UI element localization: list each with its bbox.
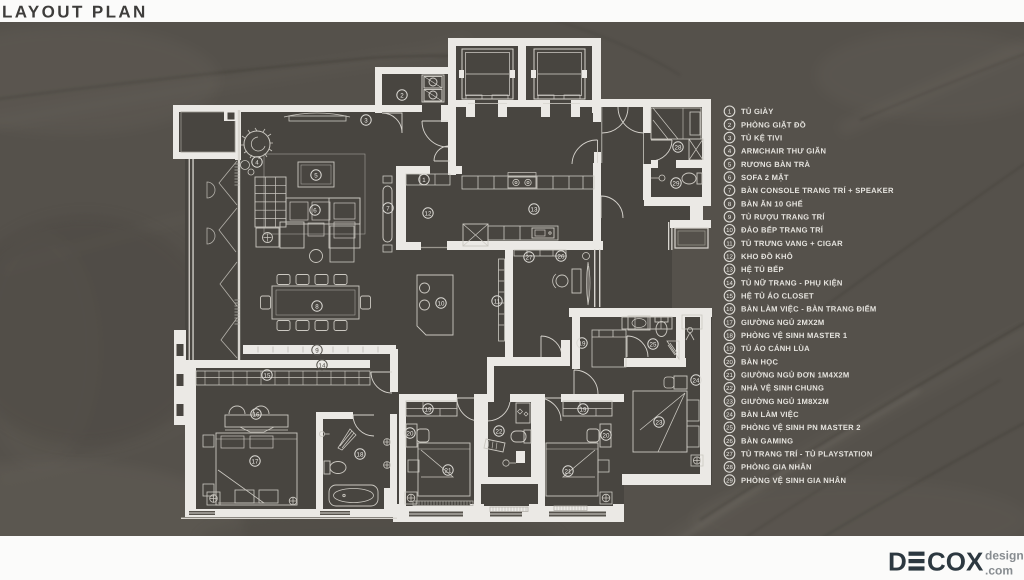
svg-text:KHO ĐỒ KHÔ: KHO ĐỒ KHÔ xyxy=(741,252,793,261)
svg-text:19: 19 xyxy=(580,406,587,413)
svg-text:28: 28 xyxy=(675,144,682,151)
svg-text:25: 25 xyxy=(650,341,657,348)
svg-text:TỦ TRANG TRÍ - TỦ PLAYSTATION: TỦ TRANG TRÍ - TỦ PLAYSTATION xyxy=(741,450,873,459)
svg-text:15: 15 xyxy=(264,372,271,379)
svg-text:14: 14 xyxy=(319,362,326,369)
svg-text:19: 19 xyxy=(579,340,586,347)
svg-text:BÀN ĂN 10 GHẾ: BÀN ĂN 10 GHẾ xyxy=(741,199,803,208)
svg-text:10: 10 xyxy=(726,227,733,234)
svg-text:13: 13 xyxy=(531,206,538,213)
svg-text:PHÒNG VỆ SINH PN MASTER 2: PHÒNG VỆ SINH PN MASTER 2 xyxy=(741,423,861,432)
svg-text:21: 21 xyxy=(445,467,452,474)
svg-text:BÀN HỌC: BÀN HỌC xyxy=(741,357,778,366)
svg-text:27: 27 xyxy=(726,451,733,458)
svg-text:15: 15 xyxy=(726,293,733,300)
svg-text:BÀN CONSOLE TRANG TRÍ + SPEAKE: BÀN CONSOLE TRANG TRÍ + SPEAKER xyxy=(741,186,894,195)
svg-text:26: 26 xyxy=(558,253,565,260)
svg-text:18: 18 xyxy=(726,333,733,340)
svg-text:COX: COX xyxy=(927,547,984,577)
svg-text:GIƯỜNG NGỦ ĐƠN 1M4X2M: GIƯỜNG NGỦ ĐƠN 1M4X2M xyxy=(741,371,849,380)
svg-text:design: design xyxy=(985,549,1024,563)
svg-text:2: 2 xyxy=(400,92,404,99)
svg-text:26: 26 xyxy=(726,438,733,445)
svg-text:3: 3 xyxy=(364,117,368,124)
svg-text:22: 22 xyxy=(496,428,503,435)
svg-text:8: 8 xyxy=(315,303,319,310)
svg-text:GIƯỜNG NGỦ 2MX2M: GIƯỜNG NGỦ 2MX2M xyxy=(741,318,824,327)
svg-text:20: 20 xyxy=(407,430,414,437)
svg-text:16: 16 xyxy=(253,411,260,418)
svg-text:TỦ NỮ TRANG - PHỤ KIỆN: TỦ NỮ TRANG - PHỤ KIỆN xyxy=(741,278,843,287)
svg-text:22: 22 xyxy=(726,385,733,392)
svg-text:29: 29 xyxy=(726,477,733,484)
svg-text:D: D xyxy=(888,547,907,577)
svg-text:7: 7 xyxy=(386,205,390,212)
svg-text:PHÒNG VỆ SINH GIA NHÂN: PHÒNG VỆ SINH GIA NHÂN xyxy=(741,476,846,485)
svg-text:BÀN GAMING: BÀN GAMING xyxy=(741,436,793,445)
svg-text:ĐẢO BẾP TRANG TRÍ: ĐẢO BẾP TRANG TRÍ xyxy=(741,226,824,235)
svg-text:24: 24 xyxy=(693,377,700,384)
svg-text:PHÒNG GIẶT ĐỒ: PHÒNG GIẶT ĐỒ xyxy=(741,120,806,129)
svg-text:18: 18 xyxy=(357,451,364,458)
svg-text:19: 19 xyxy=(726,346,733,353)
svg-text:16: 16 xyxy=(726,306,733,313)
svg-text:PHÒNG GIA NHÂN: PHÒNG GIA NHÂN xyxy=(741,463,812,472)
svg-text:21: 21 xyxy=(565,468,572,475)
svg-text:TỦ RƯỢU TRANG TRÍ: TỦ RƯỢU TRANG TRÍ xyxy=(741,213,825,222)
svg-text:4: 4 xyxy=(255,159,259,166)
svg-text:HỆ TỦ ÁO CLOSET: HỆ TỦ ÁO CLOSET xyxy=(741,292,814,301)
svg-text:23: 23 xyxy=(726,398,733,405)
svg-text:28: 28 xyxy=(726,464,733,471)
svg-text:23: 23 xyxy=(656,419,663,426)
svg-text:29: 29 xyxy=(673,180,680,187)
svg-text:9: 9 xyxy=(315,347,319,354)
svg-text:20: 20 xyxy=(726,359,733,366)
svg-text:.com: .com xyxy=(985,564,1013,578)
svg-text:20: 20 xyxy=(603,432,610,439)
svg-text:PHÒNG VỆ SINH MASTER 1: PHÒNG VỆ SINH MASTER 1 xyxy=(741,331,848,340)
svg-text:11: 11 xyxy=(494,298,501,305)
svg-text:14: 14 xyxy=(726,280,733,287)
svg-text:17: 17 xyxy=(726,319,733,326)
svg-text:10: 10 xyxy=(438,300,445,307)
svg-text:17: 17 xyxy=(252,458,259,465)
svg-text:25: 25 xyxy=(726,425,733,432)
svg-text:TỦ TRƯNG VANG + CIGAR: TỦ TRƯNG VANG + CIGAR xyxy=(741,239,843,248)
svg-text:BÀN LÀM VIỆC - BÀN TRANG ĐIỂM: BÀN LÀM VIỆC - BÀN TRANG ĐIỂM xyxy=(741,305,877,314)
svg-text:LAYOUT PLAN: LAYOUT PLAN xyxy=(2,3,148,22)
svg-text:24: 24 xyxy=(726,412,733,419)
svg-text:13: 13 xyxy=(726,267,733,274)
svg-text:GIƯỜNG NGỦ 1M8X2M: GIƯỜNG NGỦ 1M8X2M xyxy=(741,397,829,406)
svg-text:BÀN LÀM VIỆC: BÀN LÀM VIỆC xyxy=(741,410,799,419)
svg-text:TỦ GIÀY: TỦ GIÀY xyxy=(741,107,774,116)
svg-text:6: 6 xyxy=(313,207,317,214)
svg-text:21: 21 xyxy=(726,372,733,379)
svg-text:11: 11 xyxy=(726,240,733,247)
svg-text:27: 27 xyxy=(526,254,533,261)
svg-text:NHÀ VỆ SINH CHUNG: NHÀ VỆ SINH CHUNG xyxy=(741,384,824,393)
svg-text:19: 19 xyxy=(425,406,432,413)
svg-text:RƯƠNG BÀN TRÀ: RƯƠNG BÀN TRÀ xyxy=(741,160,810,169)
svg-text:TỦ KỆ TIVI: TỦ KỆ TIVI xyxy=(741,133,782,142)
svg-text:12: 12 xyxy=(726,254,733,261)
svg-text:ARMCHAIR THƯ GIÃN: ARMCHAIR THƯ GIÃN xyxy=(741,147,826,156)
svg-text:TỦ ÁO CÁNH LÙA: TỦ ÁO CÁNH LÙA xyxy=(741,344,810,353)
svg-text:SOFA 2 MẶT: SOFA 2 MẶT xyxy=(741,173,789,182)
svg-text:5: 5 xyxy=(314,172,318,179)
svg-text:12: 12 xyxy=(425,210,432,217)
svg-text:HỆ TỦ BẾP: HỆ TỦ BẾP xyxy=(741,265,784,274)
svg-text:1: 1 xyxy=(422,177,426,184)
